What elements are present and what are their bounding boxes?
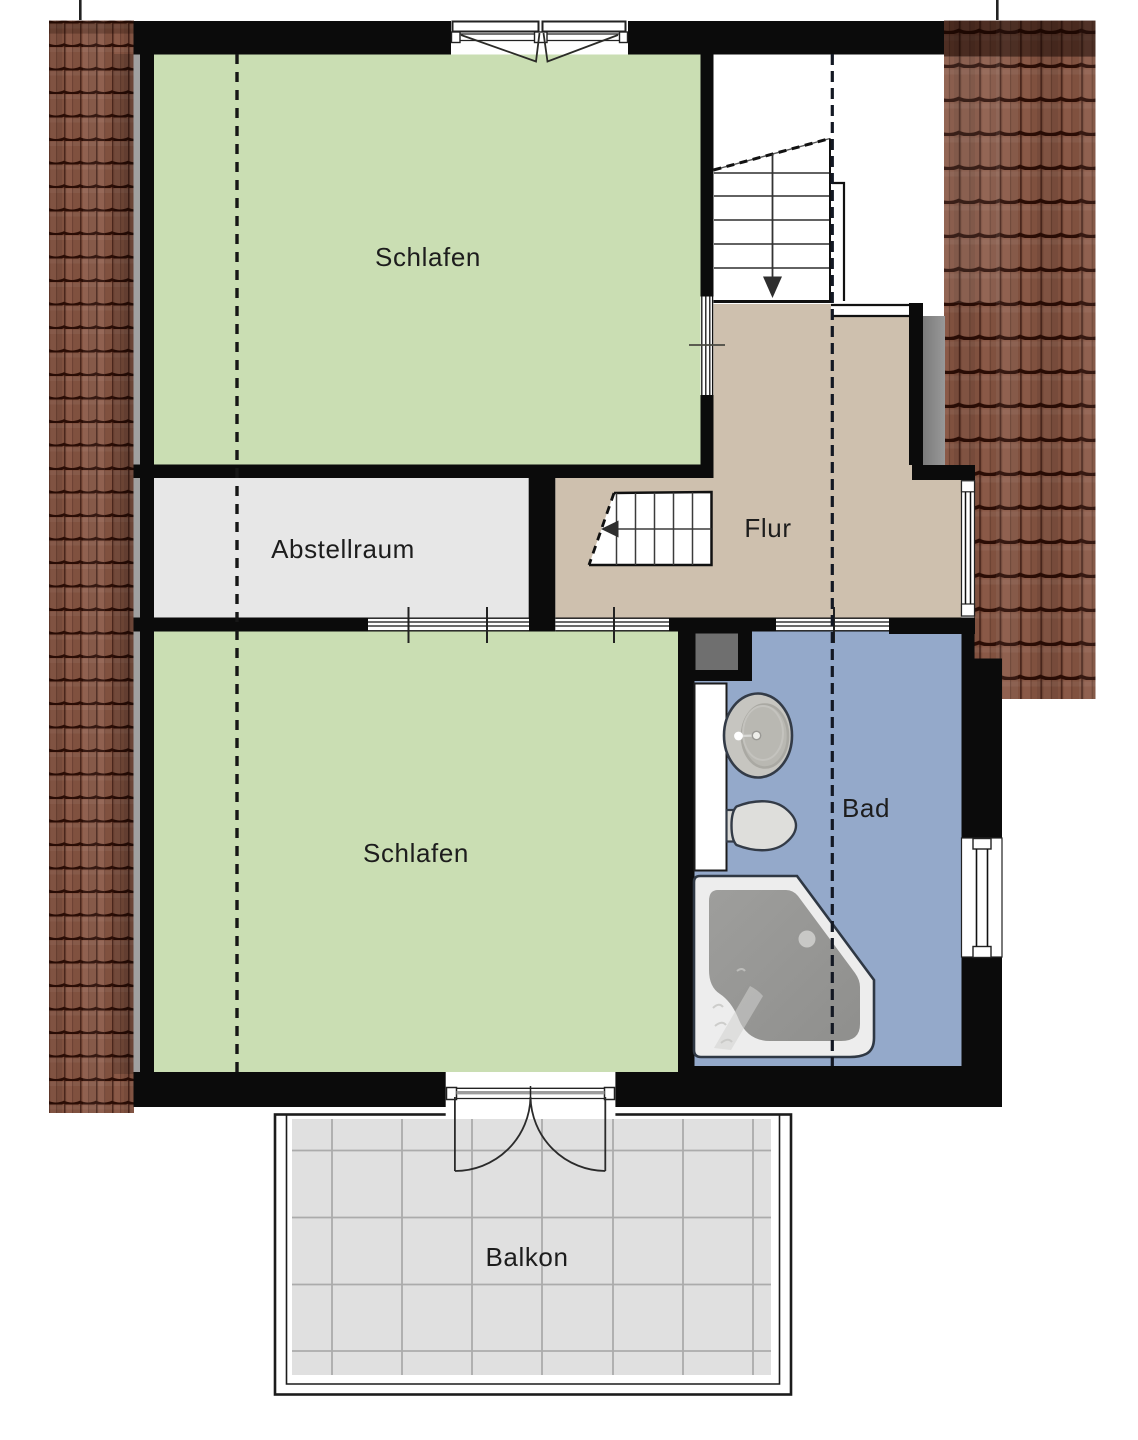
svg-text:Bad: Bad xyxy=(842,793,890,823)
svg-text:Balkon: Balkon xyxy=(485,1242,568,1272)
svg-text:Abstellraum: Abstellraum xyxy=(271,534,415,564)
svg-text:Schlafen: Schlafen xyxy=(375,242,481,272)
svg-text:Flur: Flur xyxy=(744,513,791,543)
svg-text:Schlafen: Schlafen xyxy=(363,838,469,868)
